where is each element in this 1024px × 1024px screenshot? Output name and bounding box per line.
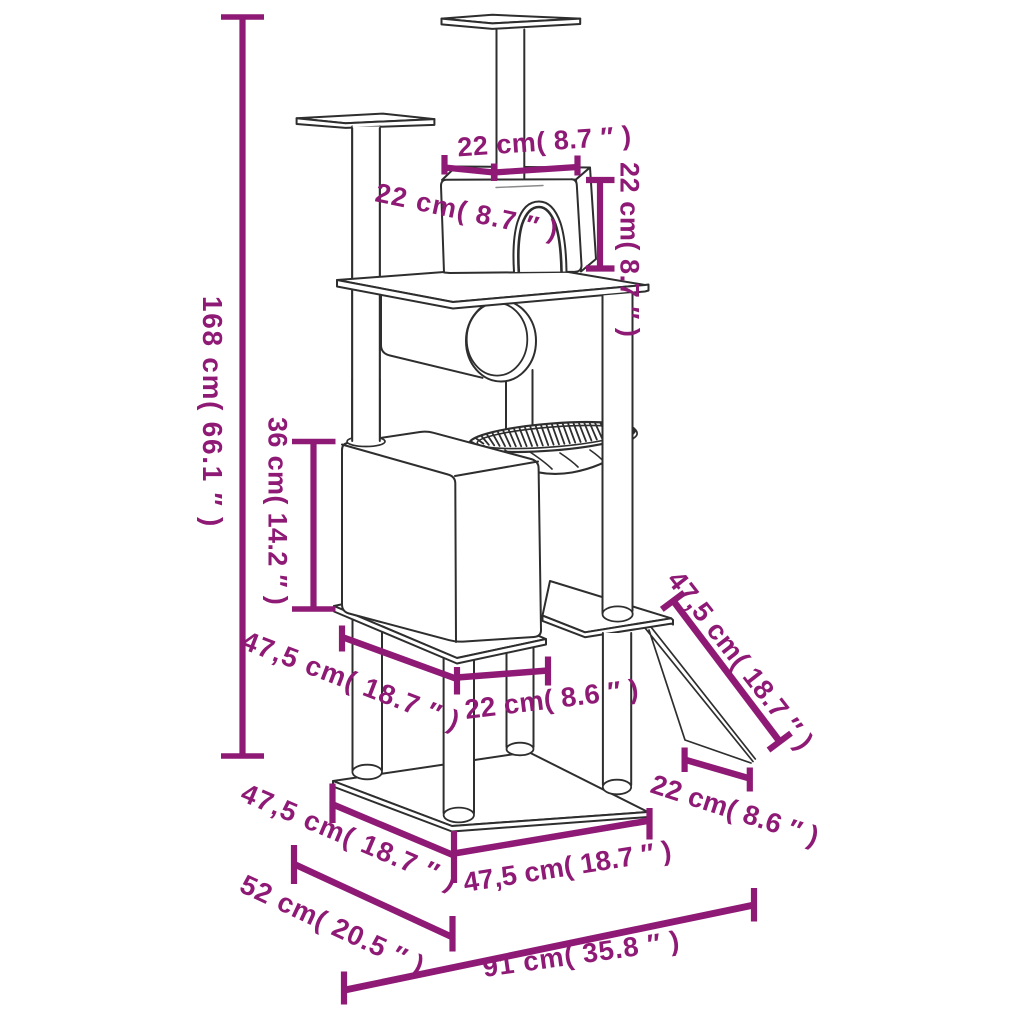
svg-text:168 cm( 66.1 ″ ): 168 cm( 66.1 ″ ) <box>197 296 228 528</box>
svg-text:22 cm( 8.6 ″ ): 22 cm( 8.6 ″ ) <box>647 768 823 852</box>
svg-text:36 cm( 14.2 ″ ): 36 cm( 14.2 ″ ) <box>263 417 293 605</box>
svg-text:22 cm( 8.7 ″ ): 22 cm( 8.7 ″ ) <box>456 120 632 162</box>
svg-text:91 cm( 35.8 ″ ): 91 cm( 35.8 ″ ) <box>481 925 682 983</box>
svg-text:22 cm( 8.7 ″ ): 22 cm( 8.7 ″ ) <box>615 162 645 338</box>
